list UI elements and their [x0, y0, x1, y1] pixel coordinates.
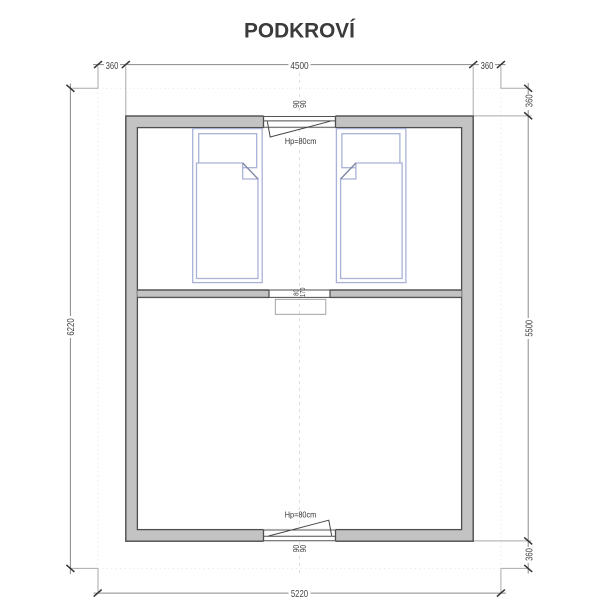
- svg-text:5500: 5500: [524, 320, 535, 337]
- svg-text:90: 90: [299, 100, 308, 108]
- svg-text:5220: 5220: [291, 589, 308, 600]
- svg-text:360: 360: [524, 94, 535, 107]
- svg-text:Hp=80cm: Hp=80cm: [285, 136, 317, 146]
- svg-text:4500: 4500: [290, 61, 309, 72]
- svg-text:360: 360: [106, 61, 119, 72]
- svg-text:Hp=80cm: Hp=80cm: [285, 510, 317, 520]
- svg-text:360: 360: [481, 61, 494, 72]
- svg-text:PODKROVÍ: PODKROVÍ: [244, 20, 356, 43]
- svg-text:170: 170: [298, 288, 307, 298]
- svg-text:6220: 6220: [66, 318, 77, 335]
- svg-text:360: 360: [524, 548, 535, 561]
- svg-text:90: 90: [299, 544, 308, 552]
